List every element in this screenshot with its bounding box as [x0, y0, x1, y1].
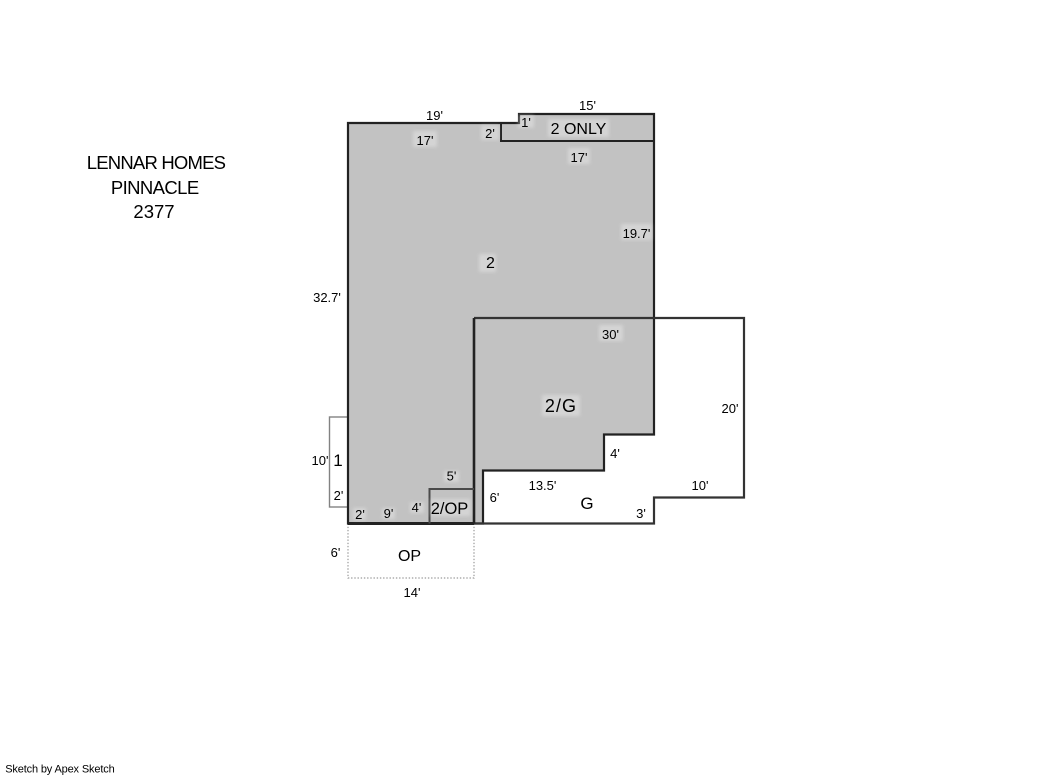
svg-text:2: 2: [486, 255, 495, 272]
svg-text:19.7': 19.7': [623, 226, 651, 241]
svg-text:1': 1': [521, 115, 531, 130]
svg-text:Sketch by Apex Sketch: Sketch by Apex Sketch: [5, 763, 114, 775]
svg-text:2 ONLY: 2 ONLY: [551, 121, 607, 138]
svg-text:LENNAR HOMES: LENNAR HOMES: [87, 152, 226, 173]
svg-text:9': 9': [384, 506, 394, 521]
svg-text:4': 4': [412, 500, 422, 515]
svg-text:10': 10': [312, 453, 329, 468]
svg-text:17': 17': [417, 133, 434, 148]
svg-text:6': 6': [490, 490, 500, 505]
svg-text:2': 2': [485, 126, 495, 141]
svg-text:4': 4': [610, 446, 620, 461]
svg-text:14': 14': [404, 585, 421, 600]
svg-text:20': 20': [722, 401, 739, 416]
svg-text:3': 3': [636, 506, 646, 521]
svg-text:G: G: [580, 494, 593, 513]
svg-text:19': 19': [426, 108, 443, 123]
svg-text:5': 5': [447, 469, 457, 484]
svg-text:2': 2': [355, 507, 365, 522]
svg-text:17': 17': [571, 150, 588, 165]
svg-text:OP: OP: [398, 548, 421, 565]
svg-text:2': 2': [334, 488, 344, 503]
svg-text:2377: 2377: [133, 201, 174, 222]
svg-text:2/G: 2/G: [545, 396, 577, 416]
svg-text:13.5': 13.5': [529, 478, 557, 493]
svg-text:2/OP: 2/OP: [431, 500, 469, 518]
svg-text:1: 1: [333, 451, 342, 470]
svg-text:6': 6': [331, 545, 341, 560]
svg-text:15': 15': [579, 98, 596, 113]
svg-text:PINNACLE: PINNACLE: [111, 177, 199, 198]
svg-text:30': 30': [602, 327, 619, 342]
svg-text:10': 10': [692, 478, 709, 493]
svg-text:32.7': 32.7': [313, 290, 341, 305]
